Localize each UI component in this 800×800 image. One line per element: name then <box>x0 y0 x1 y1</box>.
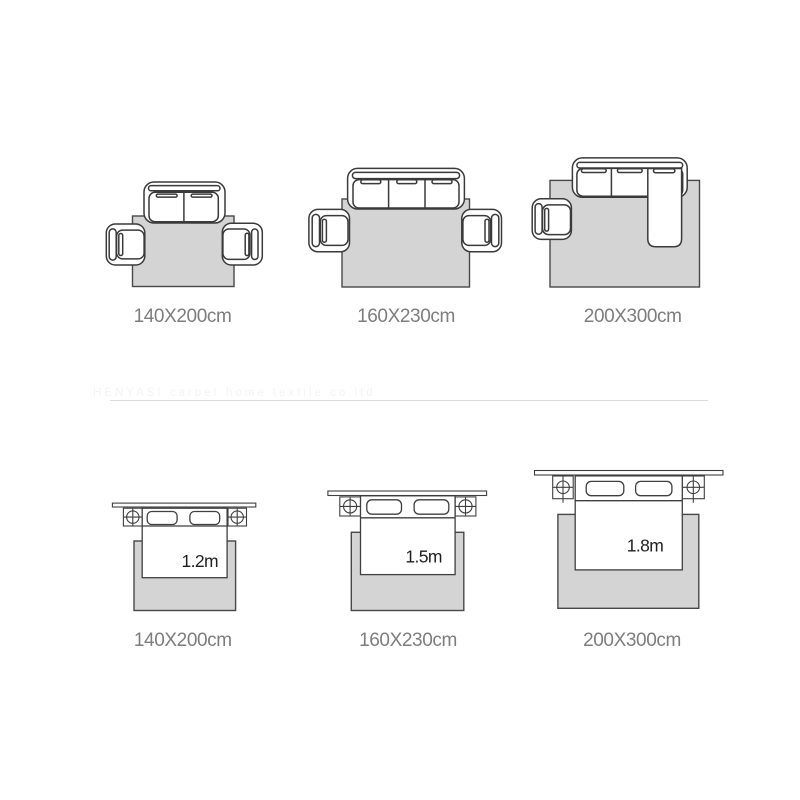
svg-text:200X300cm: 200X300cm <box>584 306 682 327</box>
svg-text:HENYASI carpet home textile co: HENYASI carpet home textile co ltd <box>93 387 376 399</box>
svg-text:1.2m: 1.2m <box>181 551 218 571</box>
svg-text:160X230cm: 160X230cm <box>359 630 457 651</box>
svg-text:140X200cm: 140X200cm <box>134 306 232 327</box>
svg-text:160X230cm: 160X230cm <box>357 306 455 327</box>
svg-text:200X300cm: 200X300cm <box>583 630 681 651</box>
svg-text:1.8m: 1.8m <box>627 536 664 556</box>
svg-text:140X200cm: 140X200cm <box>134 630 232 651</box>
svg-text:1.5m: 1.5m <box>405 547 442 567</box>
